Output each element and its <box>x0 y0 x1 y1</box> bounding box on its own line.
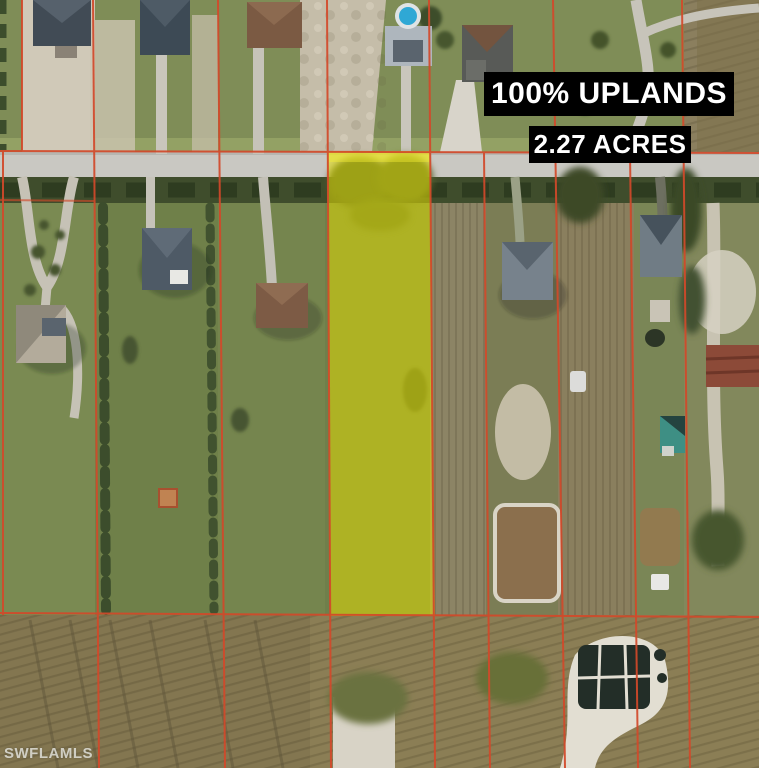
highlighted-parcel <box>327 151 435 616</box>
uplands-label-text: 100% UPLANDS <box>491 77 727 111</box>
acres-label-text: 2.27 ACRES <box>534 129 687 160</box>
mls-watermark: SWFLAMLS <box>4 745 93 762</box>
teal-shed <box>660 416 685 456</box>
orange-square-structure <box>159 489 177 507</box>
white-trailer <box>651 574 669 590</box>
white-vehicle <box>570 371 586 392</box>
uplands-label: 100% UPLANDS <box>484 72 734 116</box>
house-north-2 <box>140 0 190 55</box>
swimming-pool <box>399 7 417 25</box>
red-roof-house <box>706 345 759 387</box>
listing-aerial-photo: 100% UPLANDS 2.27 ACRES SWFLAMLS <box>0 0 759 768</box>
acres-label: 2.27 ACRES <box>529 126 691 163</box>
house-north-3 <box>247 2 302 48</box>
